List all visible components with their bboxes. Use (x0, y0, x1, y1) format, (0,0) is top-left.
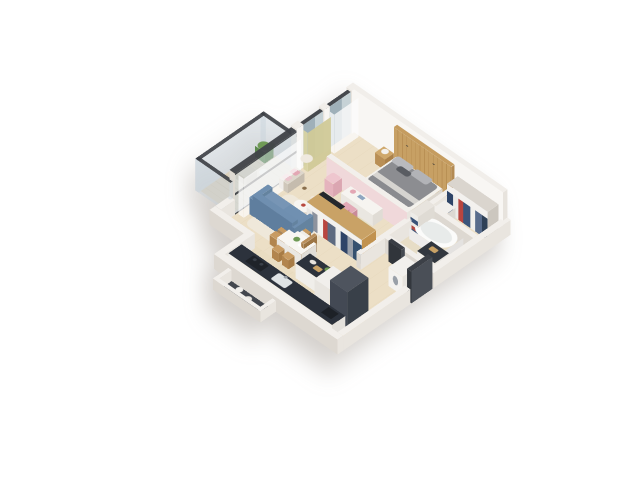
floorplan-render (0, 0, 640, 480)
wall-south-kitchen-east-face (338, 336, 344, 355)
isometric-stage (185, 48, 458, 426)
apartment-plan (128, 103, 514, 370)
entry-door (407, 286, 432, 304)
